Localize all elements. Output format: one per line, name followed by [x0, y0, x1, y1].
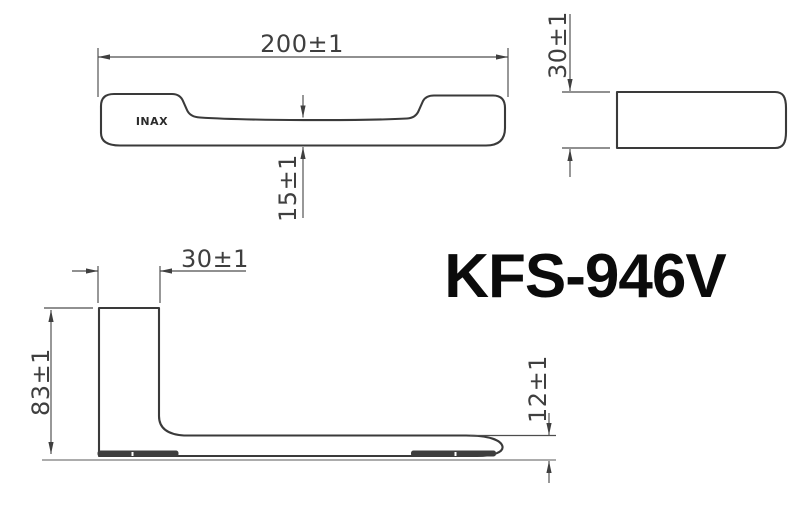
side-depth-dimension-label: 30±1 — [181, 245, 249, 273]
side-view-pad-notch-right — [455, 452, 457, 456]
drawing-canvas: INAX 200±1 15±1 30±1 — [0, 0, 800, 508]
front-width-dimension-label: 200±1 — [260, 30, 344, 58]
side-view-mount-pad-left — [98, 451, 179, 457]
end-view: 30±1 — [544, 11, 786, 177]
technical-drawing-page: INAX 200±1 15±1 30±1 — [0, 0, 800, 508]
side-view-mount-pad-right — [411, 451, 496, 457]
end-height-dimension-label: 30±1 — [544, 11, 572, 79]
brand-logo-text: INAX — [136, 115, 168, 128]
side-view-profile-outline — [99, 308, 503, 456]
end-view-body-outline — [617, 92, 786, 148]
side-height-dimension-label: 83±1 — [27, 348, 55, 416]
side-thickness-dimension-label: 12±1 — [524, 355, 552, 423]
side-view-pad-notch-left — [132, 452, 134, 456]
front-grip-dimension-label: 15±1 — [274, 154, 302, 222]
model-number-title: KFS-946V — [444, 242, 726, 311]
front-view: INAX 200±1 15±1 — [98, 30, 508, 222]
